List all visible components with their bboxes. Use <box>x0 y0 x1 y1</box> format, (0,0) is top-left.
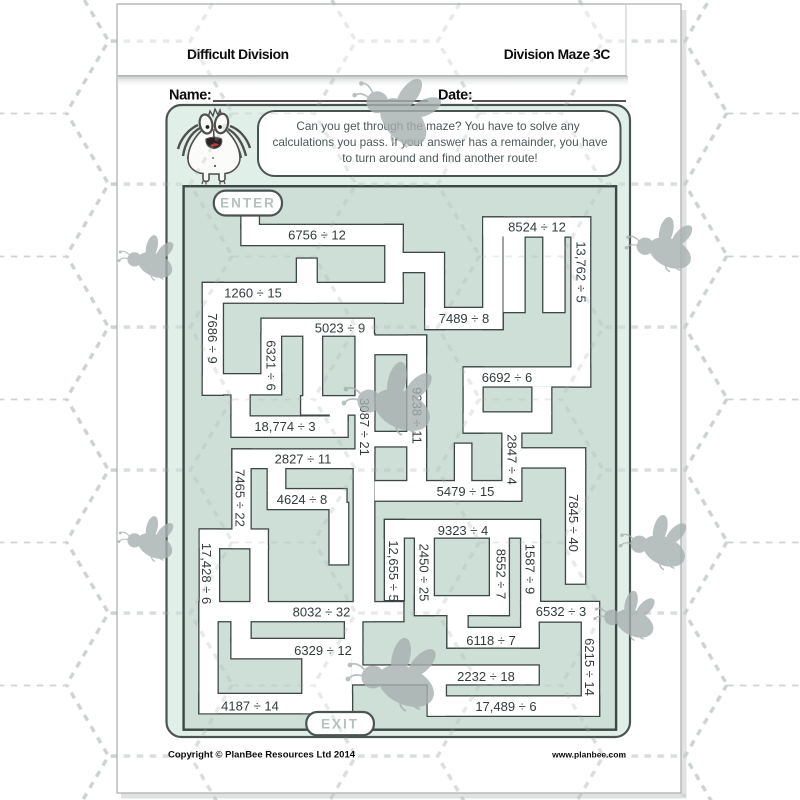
svg-text:www.planbee.com: www.planbee.com <box>551 750 626 760</box>
svg-text:Copyright © PlanBee Resources: Copyright © PlanBee Resources Ltd 2014 <box>168 750 356 761</box>
